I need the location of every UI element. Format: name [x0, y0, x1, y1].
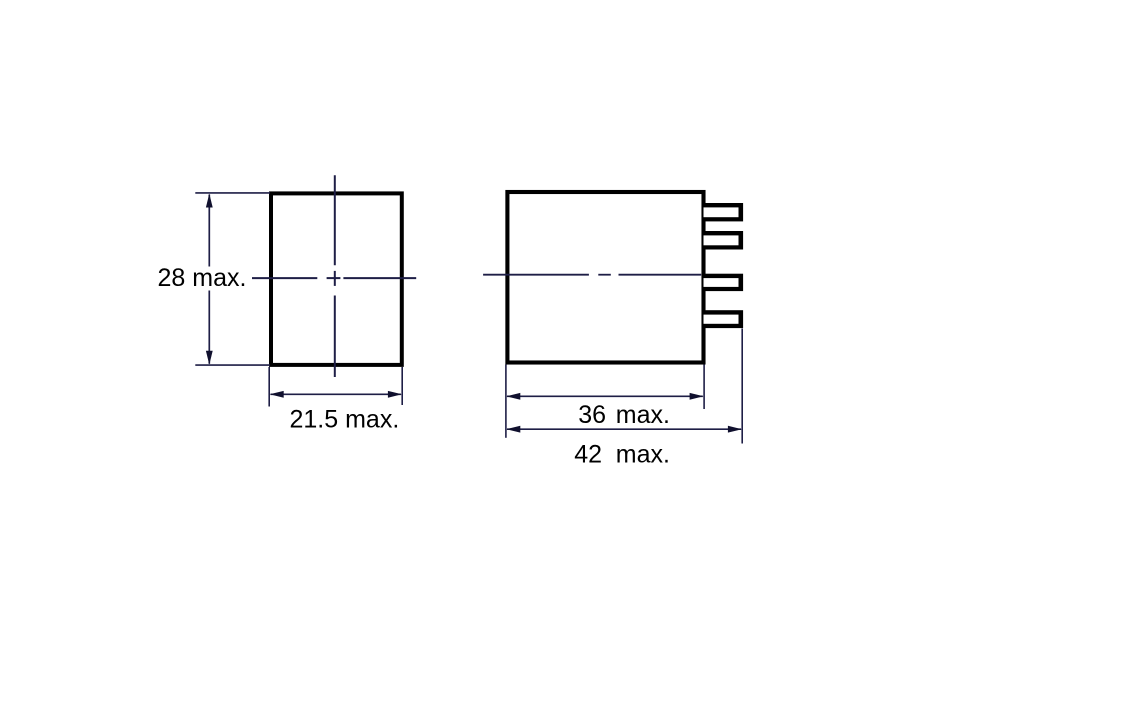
svg-text:28 max.: 28 max.	[158, 264, 247, 292]
svg-text:max.: max.	[616, 401, 670, 429]
svg-text:42: 42	[574, 441, 602, 469]
svg-text:21.5 max.: 21.5 max.	[290, 406, 400, 434]
svg-text:36: 36	[578, 401, 606, 429]
svg-text:max.: max.	[616, 441, 670, 469]
